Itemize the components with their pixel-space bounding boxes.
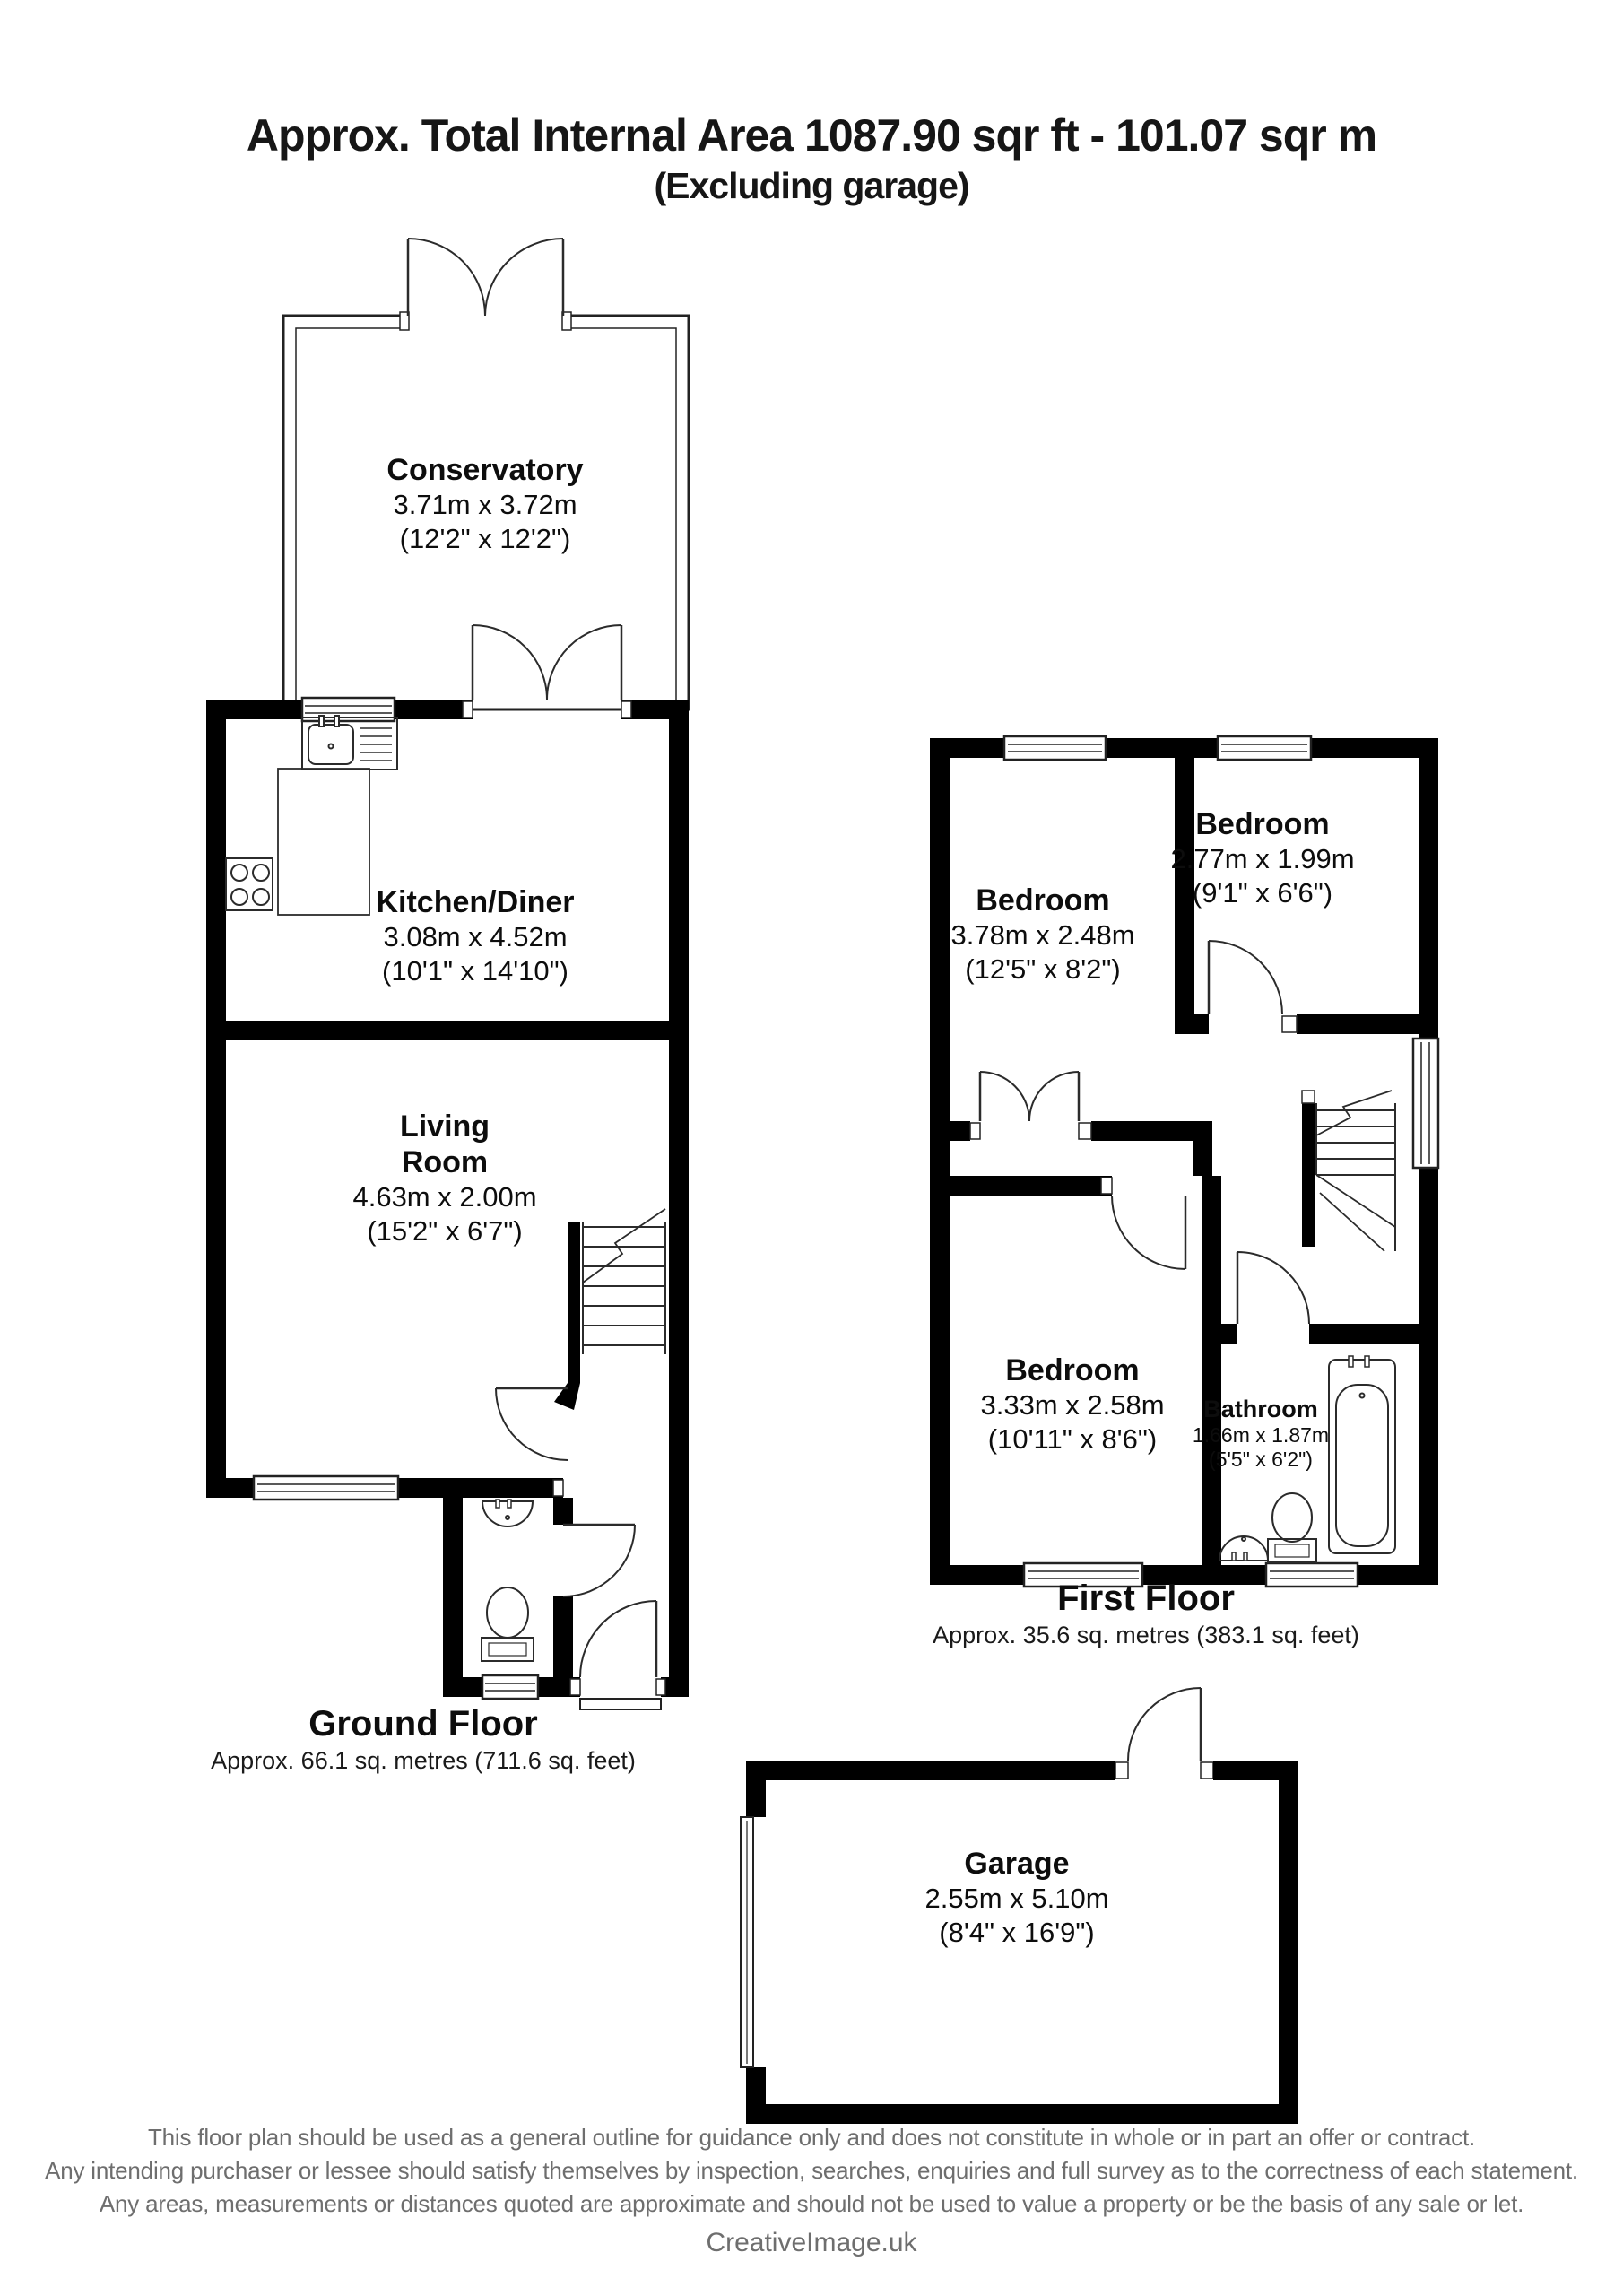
room-name: Bedroom <box>980 1352 1164 1388</box>
ground-floor-stairs <box>583 1209 665 1354</box>
room-name: Conservatory <box>386 452 583 488</box>
bedroom-top-left-label: Bedroom 3.78m x 2.48m (12'5" x 8'2") <box>950 883 1134 987</box>
bathroom-label: Bathroom 1.66m x 1.87m (5'5" x 6'2") <box>1193 1396 1329 1472</box>
room-name-line2: Room <box>352 1144 536 1180</box>
kitchen-hob <box>226 858 273 910</box>
bathroom-window <box>1266 1563 1358 1587</box>
bedroom-top-left-double-door <box>980 1072 1079 1121</box>
garage-side-door <box>1128 1688 1201 1761</box>
room-dim-metric: 2.77m x 1.99m <box>1170 842 1354 876</box>
room-name: Garage <box>924 1846 1108 1882</box>
room-dim-imperial: (9'1" x 6'6") <box>1170 876 1354 910</box>
bathroom-sink <box>1219 1536 1268 1561</box>
room-name: Bedroom <box>1170 806 1354 842</box>
ground-floor-area: Approx. 66.1 sq. metres (711.6 sq. feet) <box>211 1747 636 1775</box>
room-dim-imperial: (10'11" x 8'6") <box>980 1422 1164 1457</box>
bedroom-bottom-label: Bedroom 3.33m x 2.58m (10'11" x 8'6") <box>980 1352 1164 1457</box>
page-subtitle: (Excluding garage) <box>654 165 968 207</box>
disclaimer-line-1: This floor plan should be used as a gene… <box>148 2124 1475 2152</box>
kitchen-label: Kitchen/Diner 3.08m x 4.52m (10'1" x 14'… <box>376 884 574 988</box>
room-name: Kitchen/Diner <box>376 884 574 920</box>
room-name: Bedroom <box>950 883 1134 918</box>
front-door <box>580 1601 656 1677</box>
bedroom-top-right-window <box>1218 736 1311 760</box>
stairwell-window <box>1413 1039 1438 1168</box>
room-dim-imperial: (12'5" x 8'2") <box>950 952 1134 987</box>
page-title: Approx. Total Internal Area 1087.90 sqr … <box>247 109 1376 161</box>
garage-up-and-over-door <box>741 1817 753 2067</box>
garage-label: Garage 2.55m x 5.10m (8'4" x 16'9") <box>924 1846 1108 1950</box>
room-dim-metric: 3.33m x 2.58m <box>980 1388 1164 1422</box>
wc-door <box>563 1525 635 1596</box>
room-dim-metric: 1.66m x 1.87m <box>1193 1423 1329 1448</box>
kitchen-conservatory-double-door <box>473 625 621 700</box>
room-dim-imperial: (5'5" x 6'2") <box>1193 1448 1329 1472</box>
bedroom-bottom-door <box>1112 1196 1185 1269</box>
first-floor-title: First Floor <box>1057 1578 1235 1619</box>
first-floor-area: Approx. 35.6 sq. metres (383.1 sq. feet) <box>933 1622 1359 1649</box>
disclaimer-line-2: Any intending purchaser or lessee should… <box>45 2157 1578 2185</box>
bathroom-toilet <box>1268 1493 1316 1562</box>
wc-sink <box>482 1500 533 1526</box>
room-name-line1: Living <box>352 1109 536 1144</box>
room-name: Bathroom <box>1193 1396 1329 1423</box>
floor-plan-page: Approx. Total Internal Area 1087.90 sqr … <box>0 0 1623 2296</box>
kitchen-sink <box>302 716 397 770</box>
room-dim-imperial: (10'1" x 14'10") <box>376 954 574 988</box>
bathroom-door <box>1237 1252 1309 1324</box>
wc-window <box>482 1675 538 1699</box>
floor-plan-drawing <box>0 0 1623 2296</box>
first-floor-stairs <box>1302 1091 1395 1251</box>
room-dim-imperial: (8'4" x 16'9") <box>924 1916 1108 1950</box>
living-room-window <box>254 1476 398 1500</box>
bath-tub <box>1329 1356 1395 1553</box>
living-room-label: Living Room 4.63m x 2.00m (15'2" x 6'7") <box>352 1109 536 1248</box>
bedroom-top-left-window <box>1004 736 1106 760</box>
kitchen-counter <box>278 769 369 915</box>
room-dim-metric: 3.71m x 3.72m <box>386 488 583 522</box>
disclaimer-line-3: Any areas, measurements or distances quo… <box>100 2190 1523 2218</box>
room-dim-metric: 3.08m x 4.52m <box>376 920 574 954</box>
bedroom-top-right-label: Bedroom 2.77m x 1.99m (9'1" x 6'6") <box>1170 806 1354 910</box>
room-dim-metric: 4.63m x 2.00m <box>352 1180 536 1214</box>
room-dim-imperial: (12'2" x 12'2") <box>386 522 583 556</box>
room-dim-imperial: (15'2" x 6'7") <box>352 1214 536 1248</box>
bedroom-top-right-door <box>1209 941 1282 1014</box>
wc-toilet <box>482 1587 534 1661</box>
credit-text: CreativeImage.uk <box>706 2228 916 2258</box>
room-dim-metric: 3.78m x 2.48m <box>950 918 1134 952</box>
conservatory-label: Conservatory 3.71m x 3.72m (12'2" x 12'2… <box>386 452 583 556</box>
conservatory-rear-double-door <box>408 239 563 316</box>
room-dim-metric: 2.55m x 5.10m <box>924 1882 1108 1916</box>
ground-floor-title: Ground Floor <box>308 1704 538 1744</box>
front-door-threshold <box>580 1699 661 1709</box>
